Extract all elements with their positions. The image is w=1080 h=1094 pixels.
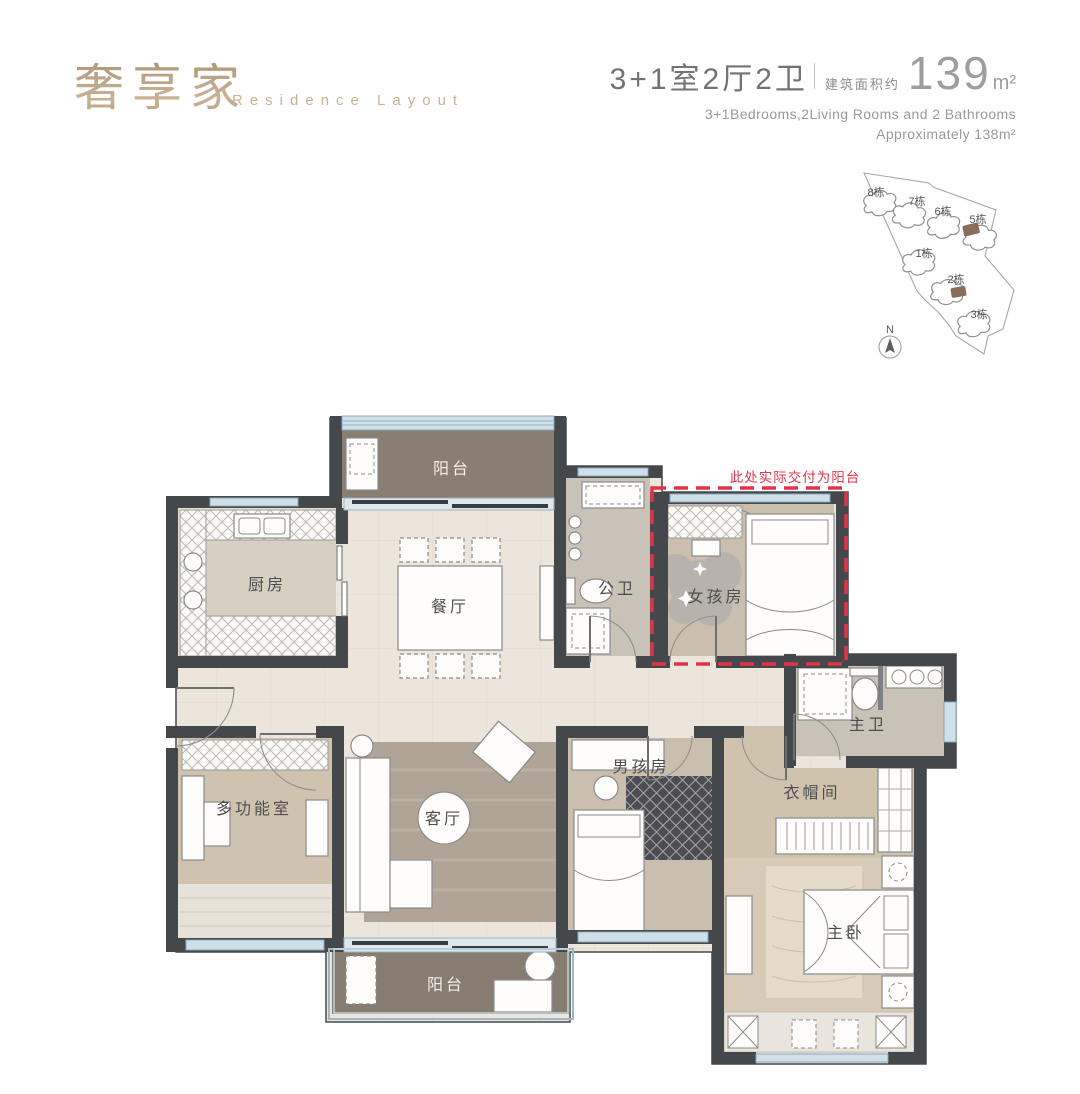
room-label-balcony-top: 阳台 — [433, 460, 471, 478]
washer-box — [346, 438, 378, 490]
toilet-tank — [566, 578, 575, 604]
stove-burner-2 — [184, 591, 202, 609]
balcony-bench — [494, 980, 552, 1012]
shower — [566, 608, 610, 654]
building-label-6: 6栋 — [934, 204, 951, 218]
room-label-master-bed: 主卧 — [827, 924, 865, 942]
room-label-public-bath: 公卫 — [598, 581, 636, 598]
sideboard — [540, 566, 554, 640]
stove-burner-1 — [184, 553, 202, 571]
room-label-cloak-room: 衣帽间 — [783, 784, 840, 802]
multi-room-window — [186, 940, 324, 950]
room-label-boy-room: 男孩房 — [612, 758, 669, 776]
shelf-item-1 — [569, 516, 581, 528]
girl-room-window — [670, 494, 830, 502]
shelf-item-2 — [569, 532, 581, 544]
site-map: 8栋 7栋 6栋 5栋 1栋 2栋 3栋 N — [862, 173, 1014, 358]
building-label-5: 5栋 — [969, 212, 986, 226]
sofa-chaise — [390, 860, 432, 908]
girl-nightstand — [692, 540, 720, 556]
room-label-multi-room: 多功能室 — [216, 800, 292, 818]
compass-label: N — [886, 324, 894, 336]
balcony-top-slider — [344, 498, 554, 510]
room-label-balcony-bottom: 阳台 — [427, 976, 465, 994]
master-bed-window — [756, 1054, 888, 1062]
building-label-8: 8栋 — [867, 185, 884, 199]
floorplan-canvas: 8栋 7栋 6栋 5栋 1栋 2栋 3栋 N — [0, 0, 1080, 1094]
planter-box — [346, 956, 376, 1004]
multi-room-tatami — [178, 884, 332, 938]
room-label-master-bath: 主卫 — [849, 716, 887, 734]
annotation-text: 此处实际交付为阳台 — [730, 469, 861, 485]
kitchen-window — [210, 498, 298, 506]
room-label-dining: 餐厅 — [431, 598, 469, 616]
multi-cabinet-right — [306, 800, 328, 856]
girl-bed — [746, 514, 834, 656]
building-label-1: 1栋 — [915, 246, 932, 260]
boy-room-window — [578, 932, 708, 942]
dresser — [726, 896, 752, 974]
public-bath-window — [578, 468, 648, 476]
master-shower — [798, 668, 852, 720]
room-label-kitchen: 厨房 — [248, 576, 286, 594]
shelf-item-3 — [569, 548, 581, 560]
boy-chair — [594, 776, 618, 800]
room-label-living: 客厅 — [425, 810, 463, 828]
sofa — [346, 758, 390, 912]
girl-wardrobe — [668, 506, 742, 538]
nightstand-bottom — [882, 976, 914, 1008]
compass-icon: N — [879, 324, 901, 358]
balcony-table — [525, 951, 555, 981]
nightstand-top — [882, 856, 914, 888]
balcony-top-window — [342, 416, 554, 430]
bath-divider-wall — [878, 666, 883, 710]
master-toilet — [852, 678, 878, 710]
room-label-girl-room: 女孩房 — [687, 587, 744, 606]
side-table — [351, 735, 373, 757]
building-label-2: 2栋 — [947, 272, 964, 286]
building-label-3: 3栋 — [970, 307, 987, 321]
master-bath-window — [944, 702, 956, 742]
boy-bed — [574, 810, 644, 934]
kitchen-counter-left — [180, 510, 206, 656]
page: 奢享家 Residence Layout 3+1室2厅2卫 建筑面积约 139 … — [0, 0, 1080, 1094]
multi-cabinet — [182, 776, 204, 860]
floorplan: 此处实际交付为阳台 阳台 厨房 餐厅 公卫 女孩房 多功能室 客厅 男孩房 主卫… — [166, 416, 966, 1066]
multi-wardrobe — [182, 740, 328, 770]
clothes-rack-stripes — [780, 822, 870, 850]
building-label-7: 7栋 — [908, 194, 925, 208]
kitchen-counter-bottom — [206, 616, 336, 656]
vanity — [886, 666, 942, 688]
master-toilet-tank — [850, 668, 880, 676]
